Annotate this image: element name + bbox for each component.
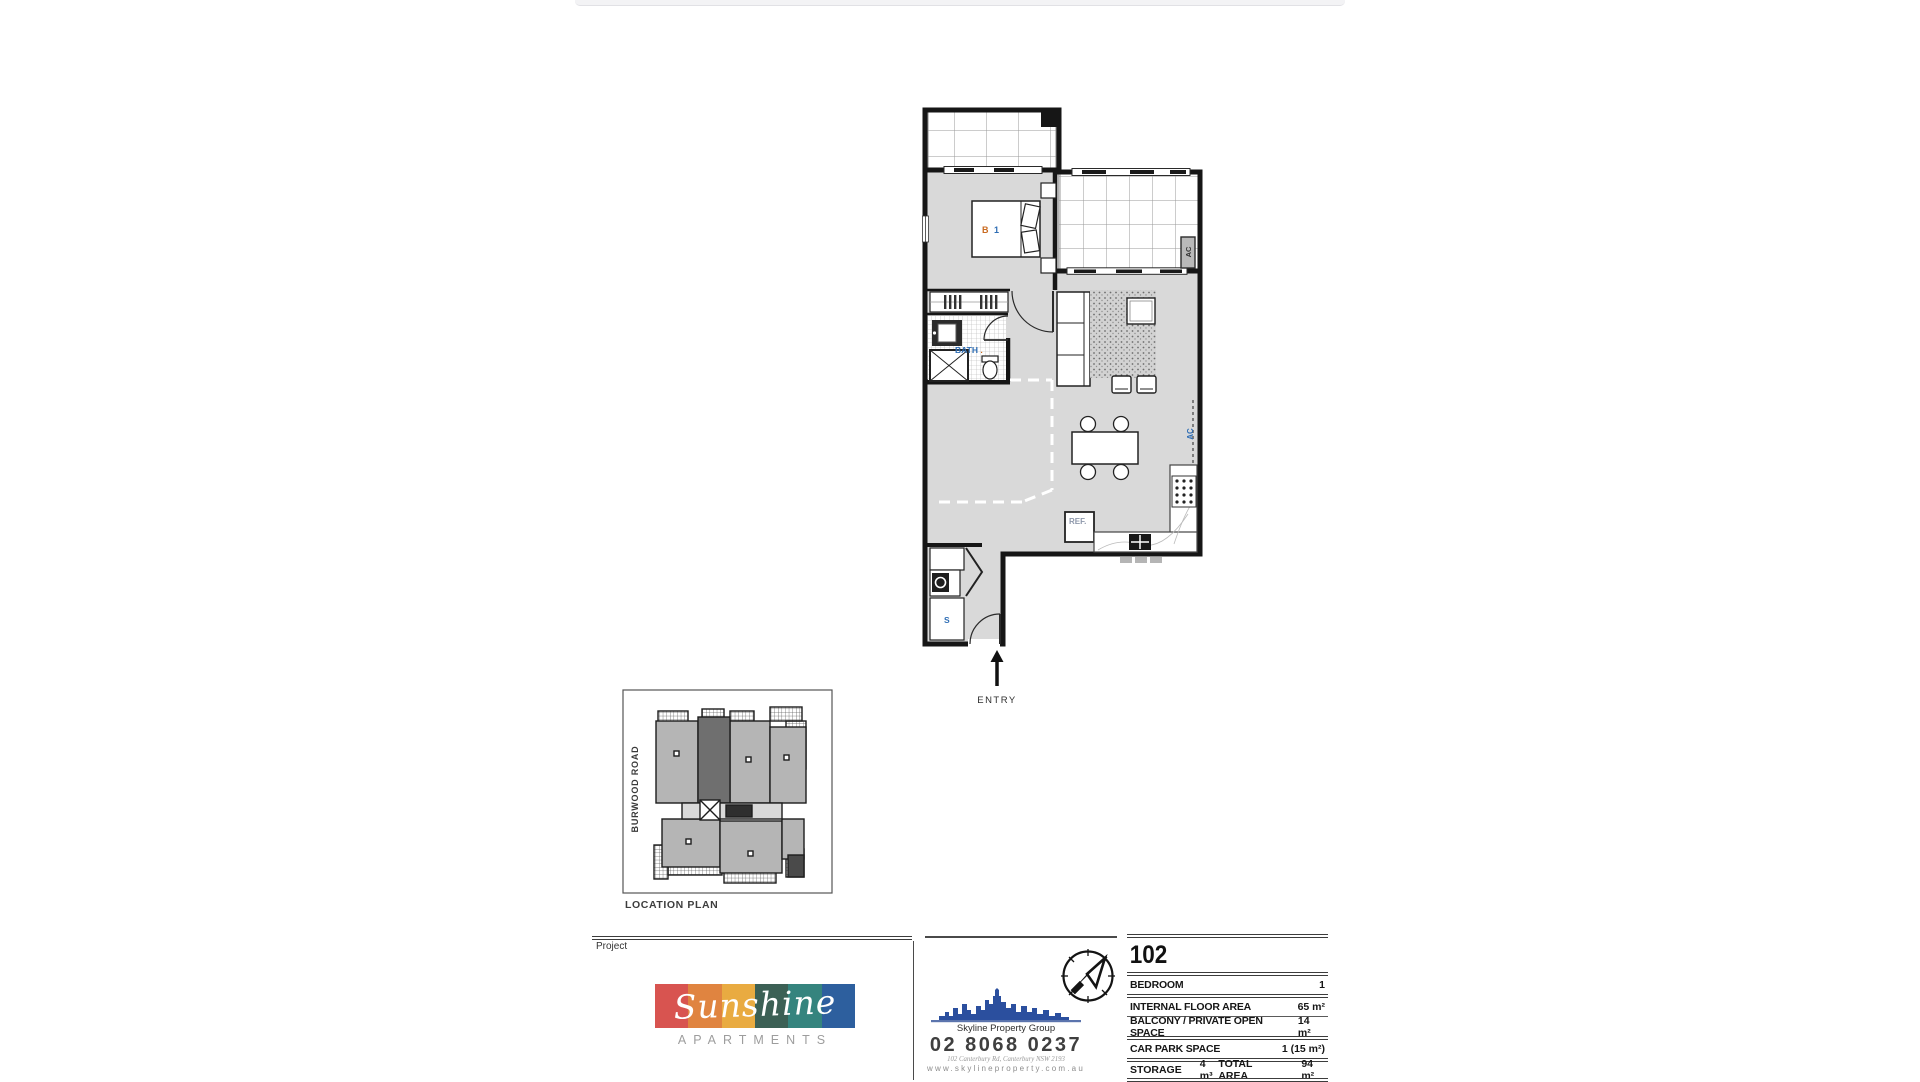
window-band-balcony-top — [1072, 169, 1190, 176]
bedside-table-top — [1041, 183, 1056, 198]
balcony-right — [1059, 174, 1198, 270]
spec-row-balcony: BALCONY / PRIVATE OPEN SPACE 14 m² — [1127, 1018, 1328, 1036]
storage-label: STORAGE — [1130, 1064, 1182, 1076]
entry-arrow-icon — [991, 650, 1004, 686]
skyline-logo — [931, 986, 1081, 1026]
window-band-living-balcony — [1067, 268, 1187, 275]
highlighted-unit — [698, 717, 730, 803]
bath-label: BATH . — [955, 345, 983, 355]
floorplan-document-page: { "floor_plan": { "bed_label_b": "B", "b… — [0, 0, 1920, 1080]
ac-wall-label: AC — [1186, 428, 1195, 440]
building-footprint — [654, 707, 806, 883]
spec-row-bedroom: BEDROOM 1 — [1127, 976, 1328, 994]
agency-phone: 02 8068 0237 — [922, 1034, 1090, 1057]
window-band-bedroom-balcony — [944, 167, 1042, 174]
table-rule — [1127, 1078, 1328, 1082]
toilet — [982, 356, 998, 379]
cooktop — [1172, 476, 1196, 507]
fridge: REF. — [1065, 512, 1094, 542]
ref-label: REF. — [1069, 517, 1086, 526]
unit-spec-table: 102 BEDROOM 1 INTERNAL FLOOR AREA 65 m² … — [1127, 934, 1328, 1082]
spec-value: 1 (15 m²) — [1282, 1043, 1325, 1055]
spec-value: 65 m² — [1298, 1001, 1325, 1013]
spec-label: CAR PARK SPACE — [1130, 1043, 1220, 1055]
sofa — [1057, 292, 1090, 386]
title-block-rule-left — [592, 936, 912, 940]
wardrobe — [930, 292, 1008, 312]
spec-label: INTERNAL FLOOR AREA — [1130, 1001, 1251, 1013]
location-plan: BURWOOD ROAD — [622, 689, 833, 894]
bedroom-side-window — [923, 216, 929, 242]
bedside-table-bottom — [1041, 258, 1056, 273]
floor-plan: AC B 1 — [922, 104, 1204, 708]
coffee-table — [1127, 298, 1155, 324]
ac-unit-balcony: AC — [1181, 237, 1195, 268]
agency-address: 102 Canterbury Rd, Canterbury NSW 2193 — [922, 1056, 1090, 1063]
location-plan-caption: LOCATION PLAN — [625, 899, 718, 911]
stairwell — [700, 800, 720, 820]
ac-balcony-label: AC — [1184, 246, 1193, 257]
spec-value: 1 — [1319, 979, 1325, 991]
north-arrow-icon — [1060, 948, 1116, 1004]
spec-row-internal-area: INTERNAL FLOOR AREA 65 m² — [1127, 998, 1328, 1016]
agency-name: Skyline Property Group — [922, 1023, 1090, 1034]
spec-row-car-park: CAR PARK SPACE 1 (15 m²) — [1127, 1040, 1328, 1058]
title-block-divider — [913, 941, 914, 1080]
bathroom: BATH . — [928, 316, 1008, 381]
title-block-rule-mid — [925, 936, 1117, 938]
storage-label: S — [944, 615, 950, 625]
entry-label: ENTRY — [977, 695, 1017, 706]
agency-website: www.skylineproperty.com.au — [922, 1064, 1090, 1073]
project-subtitle: APARTMENTS — [655, 1033, 855, 1047]
balcony-top-left — [928, 112, 1057, 169]
unit-number: 102 — [1127, 938, 1308, 972]
spec-row-storage-total: STORAGE 4 m³ TOTAL AREA 94 m² — [1127, 1062, 1328, 1078]
exterior-vents — [1120, 557, 1162, 563]
sink — [1129, 534, 1151, 550]
project-label: Project — [596, 941, 627, 952]
page-edge-bar — [575, 0, 1345, 6]
road-label: BURWOOD ROAD — [630, 746, 640, 833]
bedroom-label: B 1 — [982, 225, 999, 235]
project-name: Sunshine — [654, 978, 856, 1033]
spec-label: BEDROOM — [1130, 979, 1183, 991]
